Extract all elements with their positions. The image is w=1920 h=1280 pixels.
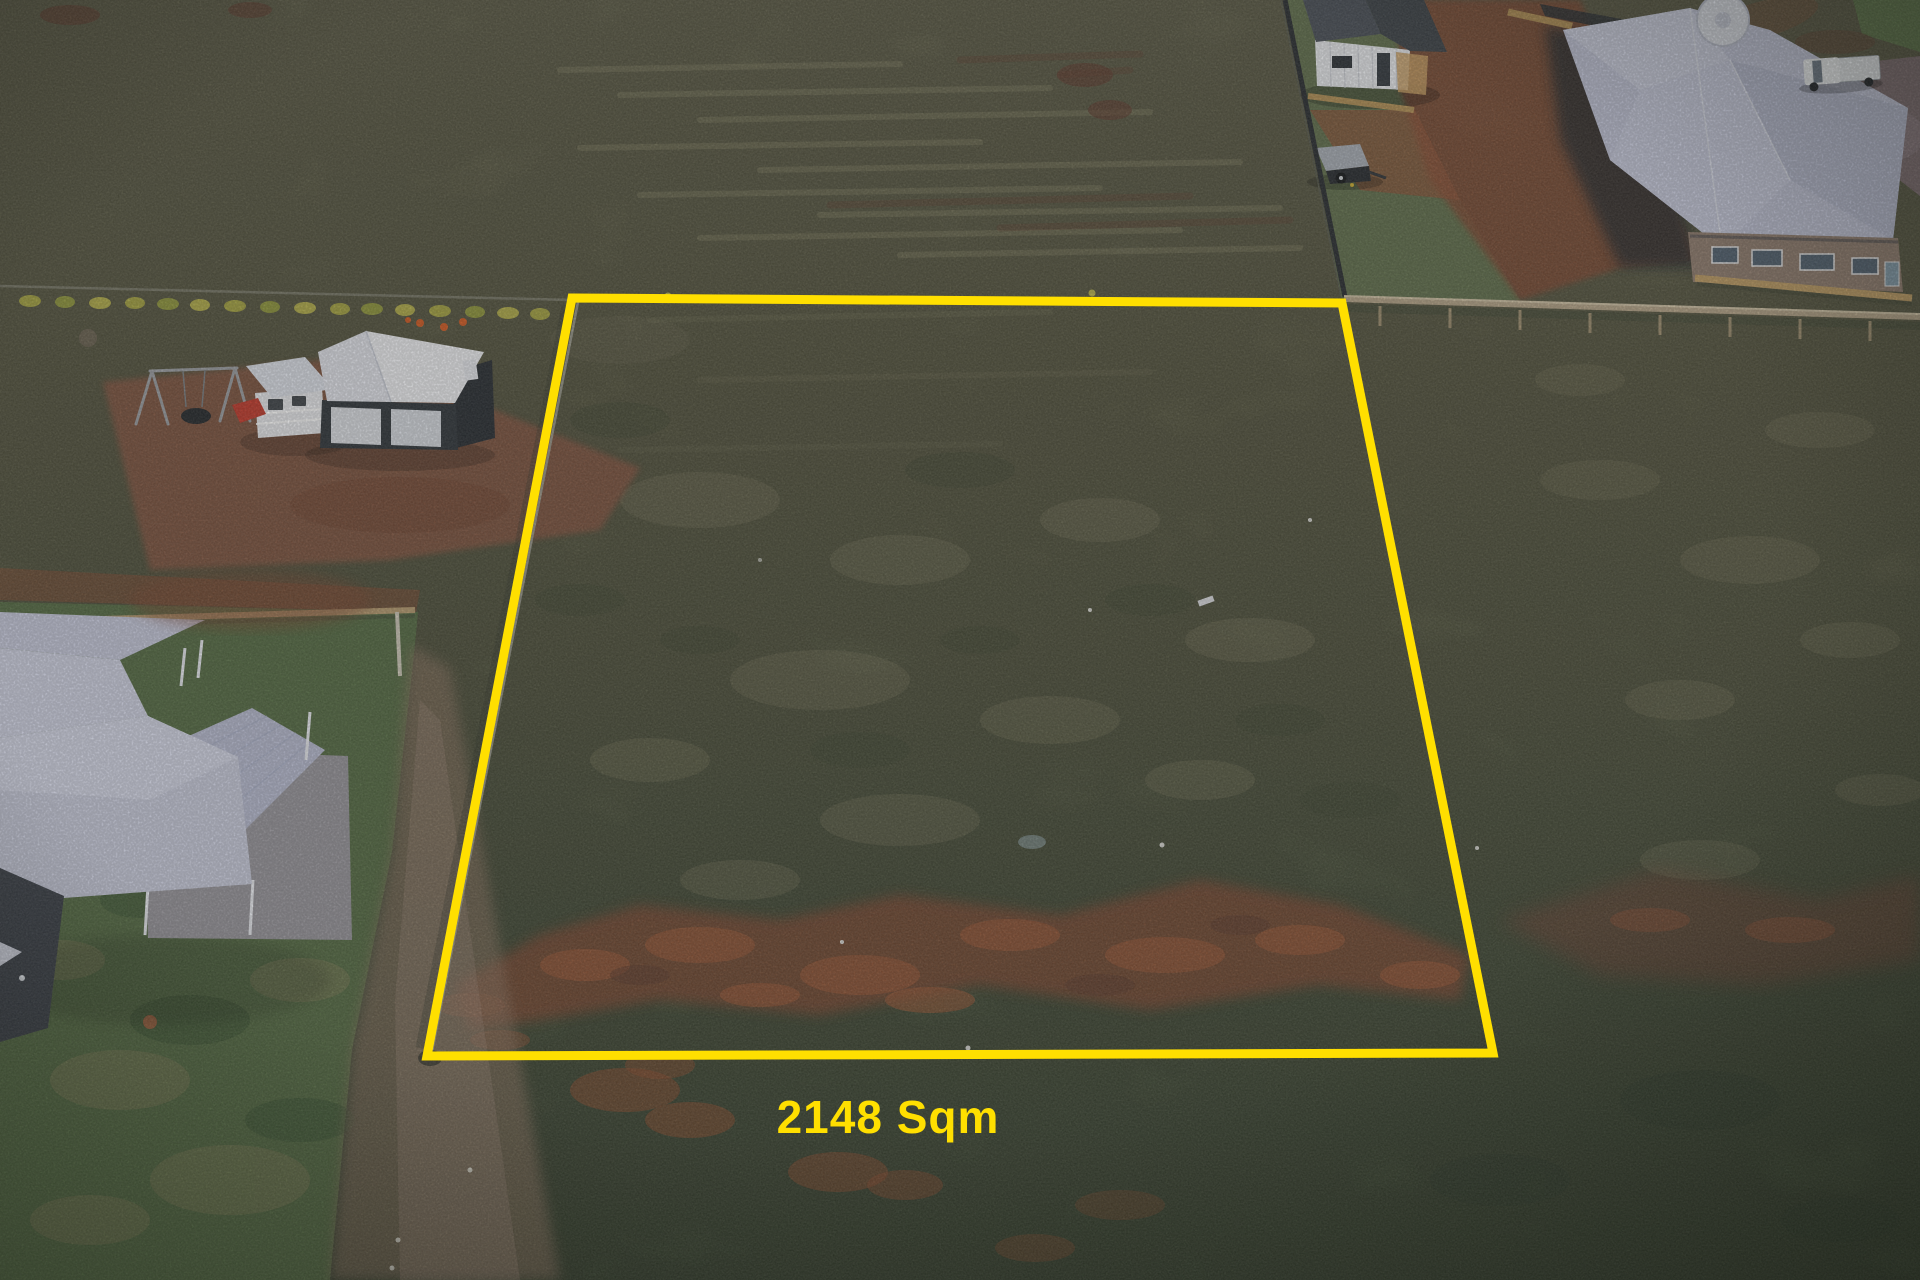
vignette: [0, 0, 1920, 1280]
area-label: 2148 Sqm: [777, 1091, 1000, 1143]
aerial-scene: 2148 Sqm: [0, 0, 1920, 1280]
aerial-photo: 2148 Sqm: [0, 0, 1920, 1280]
